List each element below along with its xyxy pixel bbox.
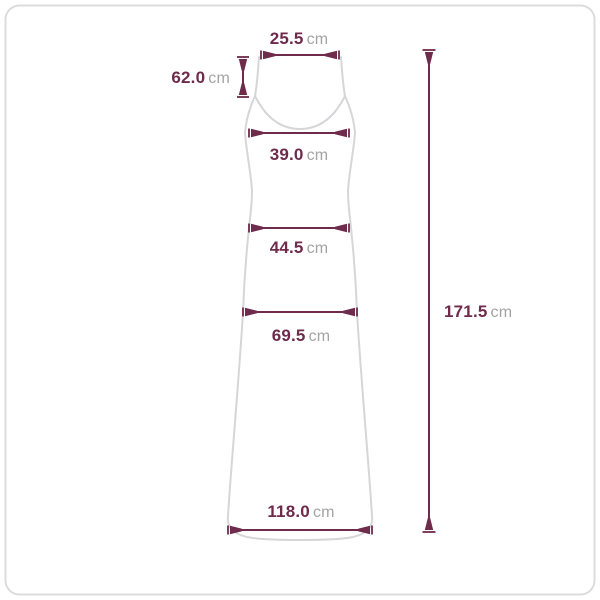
hem-width-unit: cm	[313, 504, 335, 521]
label-hip-width: 69.5cm	[272, 325, 331, 348]
measure-line-top-width	[260, 51, 340, 60]
label-strap-length: 62.0cm	[171, 67, 230, 90]
measure-line-total-length	[423, 49, 436, 533]
top-width-unit: cm	[307, 31, 329, 48]
measure-line-hem-width	[227, 526, 373, 535]
measure-line-waist-width	[248, 224, 350, 233]
label-total-length: 171.5cm	[444, 301, 512, 324]
waist-width-value: 44.5	[270, 238, 304, 257]
top-width-value: 25.5	[270, 29, 304, 48]
measure-line-strap-length	[237, 56, 249, 98]
total-length-unit: cm	[491, 304, 513, 321]
total-length-value: 171.5	[444, 302, 488, 321]
measure-line-hip-width	[242, 308, 358, 317]
chest-width-value: 39.0	[270, 145, 304, 164]
hip-width-unit: cm	[309, 328, 331, 345]
label-waist-width: 44.5cm	[270, 237, 329, 260]
measurement-lines	[227, 49, 435, 534]
hem-width-value: 118.0	[267, 502, 310, 521]
label-top-width: 25.5cm	[270, 28, 329, 51]
label-chest-width: 39.0cm	[270, 144, 329, 167]
chest-width-unit: cm	[307, 147, 329, 164]
waist-width-unit: cm	[307, 240, 329, 257]
neckline	[255, 96, 345, 129]
size-chart-panel: 25.5cm 62.0cm 39.0cm 44.5cm 69.5cm 118.0…	[0, 0, 600, 600]
hip-width-value: 69.5	[272, 326, 306, 345]
strap-length-unit: cm	[208, 70, 230, 87]
strap-length-value: 62.0	[171, 68, 205, 87]
label-hem-width: 118.0cm	[267, 501, 334, 524]
